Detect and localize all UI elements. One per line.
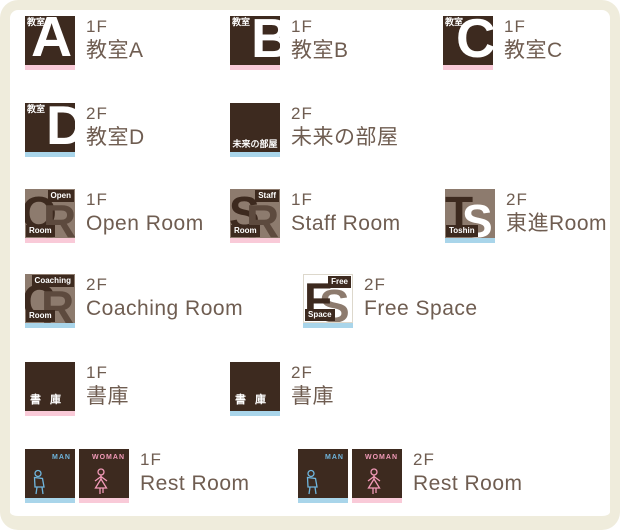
woman-strip: [352, 498, 402, 503]
classroom-tag: 教室: [27, 105, 45, 114]
room-label: 教室B: [291, 37, 349, 64]
floor-label: 2F: [364, 275, 478, 295]
woman-label: WOMAN: [365, 454, 398, 461]
icon-text: 書 庫: [235, 391, 269, 407]
legend-item-open-room: O R Open Room 1F Open Room: [25, 189, 204, 243]
floor-label: 1F: [291, 190, 401, 210]
floor-label: 1F: [140, 450, 250, 470]
stacks-icon: 書 庫: [230, 362, 280, 416]
floor-label: 2F: [413, 450, 523, 470]
classroom-a-icon: 教室 A: [25, 16, 75, 70]
icon-badge-top: Coaching: [32, 275, 74, 287]
classroom-tag: 教室: [232, 18, 250, 27]
legend-item-restroom-1f: MAN WOMAN 1F Re: [25, 449, 250, 503]
man-figure-icon: [302, 469, 326, 496]
room-label: 教室D: [86, 124, 145, 151]
staff-room-icon: S R Staff Room: [230, 189, 280, 243]
floor-strip-1f: [25, 65, 75, 70]
icon-badge-bottom: Toshin: [446, 225, 478, 237]
icon-badge-bottom: Space: [305, 309, 335, 321]
floor-label: 2F: [291, 104, 399, 124]
floor-label: 1F: [504, 17, 563, 37]
floor-label: 2F: [86, 104, 145, 124]
legend-item-staff-room: S R Staff Room 1F Staff Room: [230, 189, 401, 243]
floor-label: 2F: [86, 275, 243, 295]
woman-figure-icon: [90, 468, 114, 496]
room-label: 東進Room: [506, 210, 607, 237]
floor-strip-1f: [443, 65, 493, 70]
icon-badge-bottom: Room: [26, 310, 55, 322]
icon-letter: B: [251, 16, 280, 65]
floor-strip-2f: [25, 152, 75, 157]
floor-strip-1f: [25, 238, 75, 243]
icon-letter: C: [456, 16, 493, 65]
legend-item-free-space: S F Free Space 2F Free Space: [303, 274, 478, 328]
woman-strip: [79, 498, 129, 503]
room-label: 教室C: [504, 37, 563, 64]
restroom-man-icon: MAN: [298, 449, 348, 503]
legend-item-stacks-2f: 書 庫 2F 書庫: [230, 362, 334, 416]
room-label: 書庫: [291, 383, 334, 410]
woman-figure-icon: [363, 468, 387, 496]
legend-item-coaching-room: C R Coaching Room 2F Coaching Room: [25, 274, 243, 328]
floor-label: 1F: [86, 17, 144, 37]
floor-strip-1f: [230, 238, 280, 243]
icon-badge-top: Free: [328, 276, 351, 288]
legend-item-restroom-2f: MAN WOMAN 2F Re: [298, 449, 523, 503]
room-label: 書庫: [86, 383, 129, 410]
restroom-woman-icon: WOMAN: [352, 449, 402, 503]
floor-strip-2f: [303, 323, 353, 328]
man-strip: [298, 498, 348, 503]
floor-strip-2f: [230, 411, 280, 416]
mirai-room-icon: 未来の部屋: [230, 103, 280, 157]
floor-strip-1f: [25, 411, 75, 416]
legend-item-classroom-b: 教室 B 1F 教室B: [230, 16, 349, 70]
icon-letter: D: [46, 103, 75, 152]
legend-item-classroom-d: 教室 D 2F 教室D: [25, 103, 145, 157]
room-label: Rest Room: [140, 470, 250, 497]
man-strip: [25, 498, 75, 503]
legend-item-classroom-c: 教室 C 1F 教室C: [443, 16, 563, 70]
room-label: Rest Room: [413, 470, 523, 497]
restroom-woman-icon: WOMAN: [79, 449, 129, 503]
icon-badge-bottom: Room: [231, 225, 260, 237]
icon-badge-bottom: Room: [26, 225, 55, 237]
free-space-icon: S F Free Space: [303, 274, 353, 328]
room-label: Coaching Room: [86, 295, 243, 322]
open-room-icon: O R Open Room: [25, 189, 75, 243]
floor-strip-1f: [230, 65, 280, 70]
legend-item-stacks-1f: 書 庫 1F 書庫: [25, 362, 129, 416]
room-label: 教室A: [86, 37, 144, 64]
stacks-icon: 書 庫: [25, 362, 75, 416]
floor-label: 1F: [86, 190, 204, 210]
man-label: MAN: [325, 454, 344, 461]
room-label: Staff Room: [291, 210, 401, 237]
classroom-c-icon: 教室 C: [443, 16, 493, 70]
icon-letter: A: [31, 16, 70, 65]
restroom-man-icon: MAN: [25, 449, 75, 503]
floor-label: 2F: [291, 363, 334, 383]
room-label: Open Room: [86, 210, 204, 237]
legend-item-classroom-a: 教室 A 1F 教室A: [25, 16, 144, 70]
icon-badge-top: Staff: [255, 190, 279, 202]
floor-strip-2f: [445, 238, 495, 243]
floor-label: 2F: [506, 190, 607, 210]
man-label: MAN: [52, 454, 71, 461]
legend-item-toshin-room: T S Toshin 2F 東進Room: [445, 189, 607, 243]
woman-label: WOMAN: [92, 454, 125, 461]
floor-label: 1F: [86, 363, 129, 383]
coaching-room-icon: C R Coaching Room: [25, 274, 75, 328]
room-label: Free Space: [364, 295, 478, 322]
legend-item-mirai-room: 未来の部屋 2F 未来の部屋: [230, 103, 399, 157]
floor-strip-2f: [25, 323, 75, 328]
toshin-room-icon: T S Toshin: [445, 189, 495, 243]
classroom-b-icon: 教室 B: [230, 16, 280, 70]
floor-strip-2f: [230, 152, 280, 157]
room-label: 未来の部屋: [291, 124, 399, 151]
icon-text: 未来の部屋: [230, 137, 280, 150]
classroom-d-icon: 教室 D: [25, 103, 75, 157]
floor-label: 1F: [291, 17, 349, 37]
icon-badge-top: Open: [48, 190, 74, 202]
man-figure-icon: [29, 469, 53, 496]
icon-text: 書 庫: [30, 391, 64, 407]
